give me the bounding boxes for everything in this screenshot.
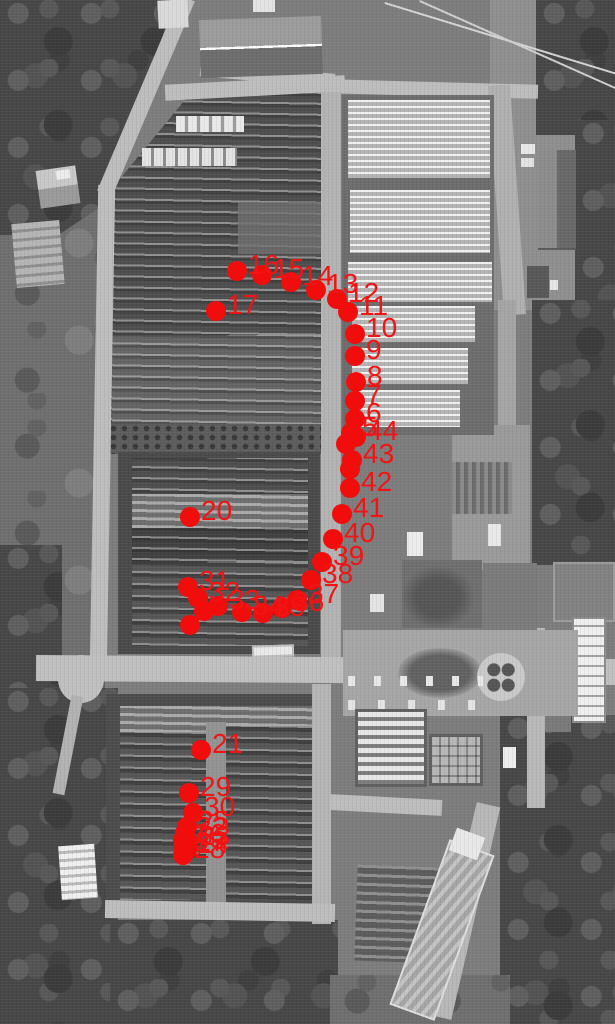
waypoint-dot[interactable] [180, 615, 200, 635]
waypoint-label-30: 30 [204, 793, 235, 821]
waypoint-label-14: 14 [302, 262, 333, 290]
marker-layer: 5678910111213141516172021222324252627282… [0, 0, 615, 1024]
waypoint-label-17: 17 [227, 291, 258, 319]
waypoint-dot[interactable] [340, 459, 360, 479]
waypoint-dot-20[interactable] [180, 507, 200, 527]
waypoint-dot-10[interactable] [345, 324, 365, 344]
waypoint-dot-8[interactable] [346, 372, 366, 392]
waypoint-dot-16[interactable] [227, 261, 247, 281]
waypoint-label-40: 40 [344, 519, 375, 547]
waypoint-dot-29[interactable] [179, 783, 199, 803]
waypoint-dot[interactable] [336, 434, 356, 454]
waypoint-dot-7[interactable] [345, 391, 365, 411]
waypoint-label-21: 21 [212, 730, 243, 758]
waypoint-label-41: 41 [353, 494, 384, 522]
waypoint-dot-21[interactable] [191, 740, 211, 760]
waypoint-dot-17[interactable] [206, 301, 226, 321]
waypoint-label-8: 8 [367, 362, 383, 390]
waypoint-label-28: 28 [194, 835, 225, 863]
aerial-map: 5678910111213141516172021222324252627282… [0, 0, 615, 1024]
waypoint-label-42: 42 [361, 468, 392, 496]
waypoint-label-16: 16 [248, 251, 279, 279]
waypoint-label-44: 44 [367, 417, 398, 445]
waypoint-label-20: 20 [201, 497, 232, 525]
waypoint-dot-28[interactable] [173, 845, 193, 865]
waypoint-dot-9[interactable] [345, 346, 365, 366]
